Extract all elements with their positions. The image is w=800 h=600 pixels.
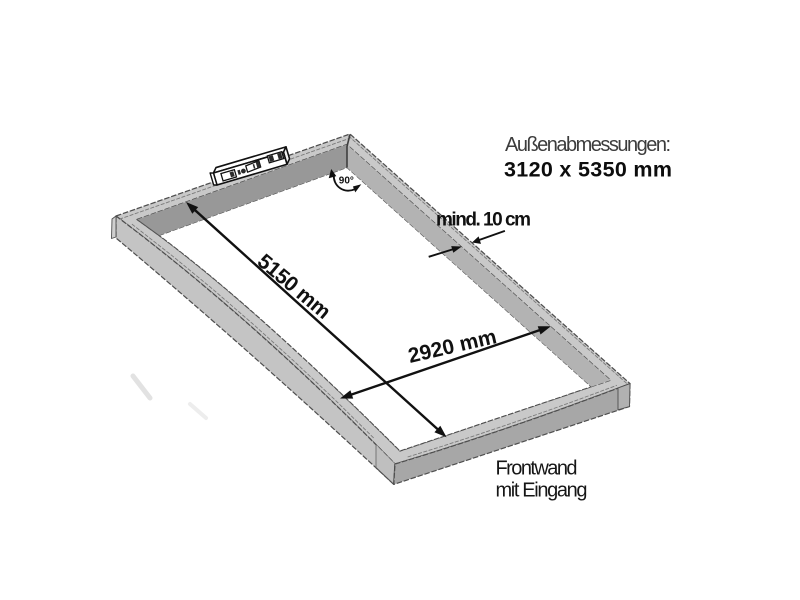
svg-text:90°: 90° [339,176,354,187]
svg-text:3120 x 5350 mm: 3120 x 5350 mm [504,158,672,182]
svg-text:mind. 10 cm: mind. 10 cm [436,210,531,231]
svg-text:Außenabmessungen:: Außenabmessungen: [505,134,671,156]
svg-text:mit Eingang: mit Eingang [496,480,588,502]
svg-text:Frontwand: Frontwand [496,458,578,480]
